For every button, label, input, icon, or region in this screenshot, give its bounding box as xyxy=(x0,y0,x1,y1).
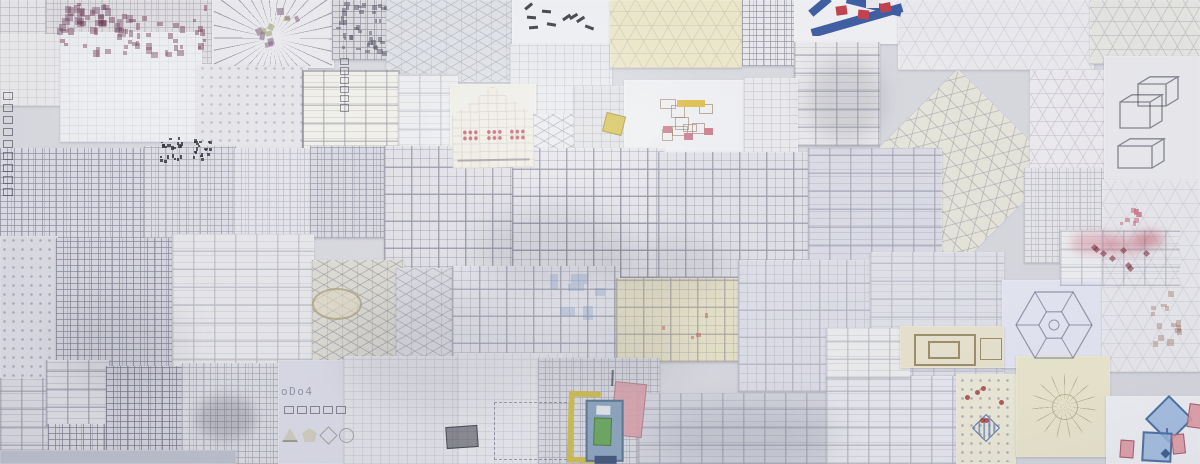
pencil-mark xyxy=(77,18,84,26)
sketch-cluster xyxy=(258,14,292,38)
pencil-mark xyxy=(264,42,273,49)
red-dot xyxy=(999,400,1004,405)
pink-watercolor-pattern-sheet xyxy=(1060,230,1180,286)
pencil-mark xyxy=(524,3,533,11)
pencil-mark xyxy=(1133,221,1136,226)
pencil-mark xyxy=(160,159,163,162)
pencil-mark xyxy=(205,149,207,151)
pencil-pattern xyxy=(898,0,1094,70)
pencil-mark xyxy=(576,15,585,22)
shading-blob xyxy=(806,58,884,142)
pencil-mark xyxy=(377,49,383,53)
pink-rectangle xyxy=(1186,403,1200,429)
pencil-mark xyxy=(369,31,372,35)
model-part xyxy=(808,0,832,17)
pencil-mark xyxy=(527,15,536,18)
pencil-mark xyxy=(339,21,343,25)
pencil-mark xyxy=(529,25,538,28)
blue-square xyxy=(1141,431,1173,463)
pencil-mark xyxy=(379,19,382,23)
pencil-mark xyxy=(194,139,197,143)
pencil-mark xyxy=(198,46,201,49)
pencil-mark xyxy=(180,145,182,148)
glyph-square xyxy=(340,67,349,74)
pencil-mark xyxy=(342,46,345,49)
pencil-pattern xyxy=(1090,0,1200,64)
pencil-mark xyxy=(1137,212,1142,217)
model-part xyxy=(858,10,870,20)
plan-square xyxy=(928,341,960,359)
pencil-mark xyxy=(171,146,174,148)
pencil-mark xyxy=(173,39,177,43)
pencil-mark xyxy=(294,16,300,23)
pencil-mark xyxy=(199,141,201,144)
pencil-mark xyxy=(1120,222,1124,226)
pencil-mark xyxy=(343,33,347,37)
pencil-mark xyxy=(168,33,173,39)
pencil-mark xyxy=(98,15,105,24)
handwritten-code-label: oDo4 xyxy=(281,385,314,398)
paper-sheet xyxy=(610,0,742,68)
pencil-mark xyxy=(65,14,73,22)
paper-sheet xyxy=(898,0,1094,70)
pink-block xyxy=(704,128,713,135)
pencil-mark xyxy=(193,156,195,159)
pencil-mark xyxy=(1165,306,1168,312)
pencil-mark xyxy=(359,10,364,14)
paper-sheet xyxy=(826,328,910,378)
sketch-cluster xyxy=(1118,208,1144,226)
sketch-cluster xyxy=(158,136,184,164)
glyph-square xyxy=(3,176,13,184)
pencil-pattern xyxy=(826,328,910,378)
pencil-mark xyxy=(691,336,694,339)
pencil-mark xyxy=(101,5,109,10)
pencil-mark xyxy=(77,8,85,18)
pencil-mark xyxy=(1176,320,1180,327)
shading-blob xyxy=(58,298,180,390)
pencil-mark xyxy=(341,16,343,21)
pencil-mark xyxy=(1177,329,1182,335)
pencil-pattern xyxy=(0,148,146,238)
pink-rectangle xyxy=(1171,433,1186,454)
isometric-boxes-drawing xyxy=(1112,76,1194,182)
sketch-cluster xyxy=(192,138,214,164)
blue-red-model-photo xyxy=(806,0,916,36)
pencil-mark xyxy=(164,160,167,164)
nested-squares-plan xyxy=(906,330,1002,366)
glyph-square xyxy=(336,406,346,414)
paper-sheet xyxy=(1090,0,1200,64)
pencil-mark xyxy=(178,137,180,140)
glyph-square xyxy=(3,140,13,148)
pencil-mark xyxy=(85,15,90,21)
shading-blob xyxy=(338,288,562,410)
pencil-mark xyxy=(157,22,163,26)
pencil-mark xyxy=(284,16,290,21)
pencil-mark xyxy=(372,11,376,15)
glyph-square xyxy=(340,95,349,102)
pencil-mark xyxy=(167,155,169,159)
glyph-square xyxy=(340,58,349,65)
paper-sheet xyxy=(0,450,236,464)
glyph-square xyxy=(340,86,349,93)
pencil-mark xyxy=(160,156,162,158)
pencil-mark xyxy=(349,35,353,39)
shading-blob xyxy=(648,406,840,464)
sketch-cluster xyxy=(1148,290,1186,352)
pencil-mark xyxy=(384,6,388,10)
pencil-mark xyxy=(203,39,206,42)
radial-pattern-drawing xyxy=(1020,360,1108,452)
glyph-square xyxy=(3,164,13,172)
pencil-mark xyxy=(1168,291,1173,297)
pink-rectangle xyxy=(1119,440,1134,459)
pencil-mark xyxy=(180,26,185,33)
window-pane xyxy=(596,405,610,414)
pencil-mark xyxy=(542,9,551,12)
pencil-mark xyxy=(346,6,349,10)
shading-blob xyxy=(598,236,730,298)
pencil-mark xyxy=(57,28,63,35)
sketch-cluster xyxy=(520,4,604,40)
pencil-mark xyxy=(367,43,370,47)
pencil-mark xyxy=(142,16,148,21)
sketch-cluster xyxy=(56,4,134,38)
pencil-mark xyxy=(705,313,708,318)
pencil-mark xyxy=(585,24,594,30)
pencil-mark xyxy=(696,333,700,338)
pencil-mark xyxy=(209,141,212,144)
pencil-mark xyxy=(118,29,125,37)
pencil-mark xyxy=(1157,323,1162,329)
pencil-mark xyxy=(204,5,207,12)
pencil-mark xyxy=(1158,335,1164,342)
pencil-mark xyxy=(136,23,141,30)
pencil-mark xyxy=(207,153,209,156)
pencil-mark xyxy=(92,7,100,14)
green-panel xyxy=(593,417,612,446)
red-dot xyxy=(981,386,986,391)
pencil-mark xyxy=(382,51,387,55)
oval-plan-sketch xyxy=(312,288,362,320)
pencil-mark xyxy=(1167,339,1174,346)
pencil-mark xyxy=(267,23,275,30)
pencil-mark xyxy=(1125,218,1130,223)
pencil-mark xyxy=(560,307,576,316)
pencil-mark xyxy=(336,27,341,29)
pencil-mark xyxy=(375,19,377,23)
photo-wall-of-drawings: oDo4 xyxy=(0,0,1200,464)
pencil-mark xyxy=(161,142,163,144)
dashed-plan-outline xyxy=(494,402,572,460)
pencil-mark xyxy=(362,3,366,8)
glyph-square xyxy=(310,406,320,414)
glyph-square xyxy=(284,406,294,414)
navy-base xyxy=(595,456,617,464)
paper-sheet xyxy=(826,376,962,464)
pencil-mark xyxy=(146,33,152,36)
pencil-mark xyxy=(126,15,133,23)
pencil-mark xyxy=(193,19,197,23)
pencil-mark xyxy=(201,158,204,162)
pencil-mark xyxy=(354,27,359,30)
dotted-grid-with-red-marks xyxy=(958,376,1014,462)
pencil-mark xyxy=(1151,306,1156,310)
pencil-mark xyxy=(373,45,377,49)
model-part xyxy=(835,5,847,15)
pencil-mark xyxy=(547,23,556,27)
pencil-mark xyxy=(177,142,179,145)
pencil-mark xyxy=(354,5,359,10)
pencil-mark xyxy=(60,39,64,43)
small-colored-note xyxy=(445,425,478,449)
glyph-square xyxy=(3,92,13,100)
pencil-mark xyxy=(162,144,165,147)
pencil-mark xyxy=(265,31,272,37)
pencil-mark xyxy=(344,2,350,6)
shading-blob xyxy=(196,396,256,440)
glyph-square xyxy=(3,128,13,136)
pencil-mark xyxy=(342,8,345,11)
circle-glyph xyxy=(339,428,354,443)
paper-sheet xyxy=(234,148,312,238)
pencil-mark xyxy=(195,30,200,36)
pencil-mark xyxy=(65,6,71,12)
pencil-mark xyxy=(196,147,198,151)
glyph-square xyxy=(3,188,13,196)
pencil-mark xyxy=(174,158,176,160)
pencil-mark xyxy=(371,40,376,44)
paper-sheet xyxy=(0,148,146,238)
glyph-square xyxy=(3,116,13,124)
pencil-pattern xyxy=(1060,230,1180,286)
model-part xyxy=(866,0,879,8)
inner-circle xyxy=(1052,394,1077,419)
plan-square xyxy=(980,338,1002,360)
pencil-pattern xyxy=(234,148,312,238)
pencil-mark xyxy=(595,288,604,296)
pencil-mark xyxy=(180,155,183,159)
glyph-square xyxy=(3,104,13,112)
glyph-square xyxy=(340,104,349,111)
pencil-mark xyxy=(117,19,123,28)
pencil-pattern xyxy=(742,0,796,66)
pencil-mark xyxy=(1153,341,1158,347)
pencil-mark xyxy=(209,148,212,151)
paper-sheet xyxy=(742,0,796,66)
glyph-square xyxy=(323,406,333,414)
pencil-mark xyxy=(173,23,179,28)
shading-blob xyxy=(560,300,682,392)
glyph-square xyxy=(297,406,307,414)
pencil-mark xyxy=(169,138,172,140)
glyph-square xyxy=(340,77,349,84)
pencil-pattern xyxy=(826,376,962,464)
pencil-mark xyxy=(1151,312,1156,316)
hexagon-plan-drawing xyxy=(1006,284,1102,366)
pencil-mark xyxy=(372,5,377,10)
pencil-mark xyxy=(342,11,347,16)
pencil-mark xyxy=(343,20,347,25)
pencil-mark xyxy=(356,48,361,51)
shading-blob xyxy=(58,38,210,130)
shading-blob xyxy=(430,58,692,180)
pencil-mark xyxy=(358,30,362,33)
pencil-mark xyxy=(365,50,370,53)
pencil-pattern xyxy=(610,0,742,68)
sketch-cluster xyxy=(336,2,388,56)
pencil-mark xyxy=(90,27,98,34)
glyph-square xyxy=(3,152,13,160)
pencil-mark xyxy=(378,37,382,43)
